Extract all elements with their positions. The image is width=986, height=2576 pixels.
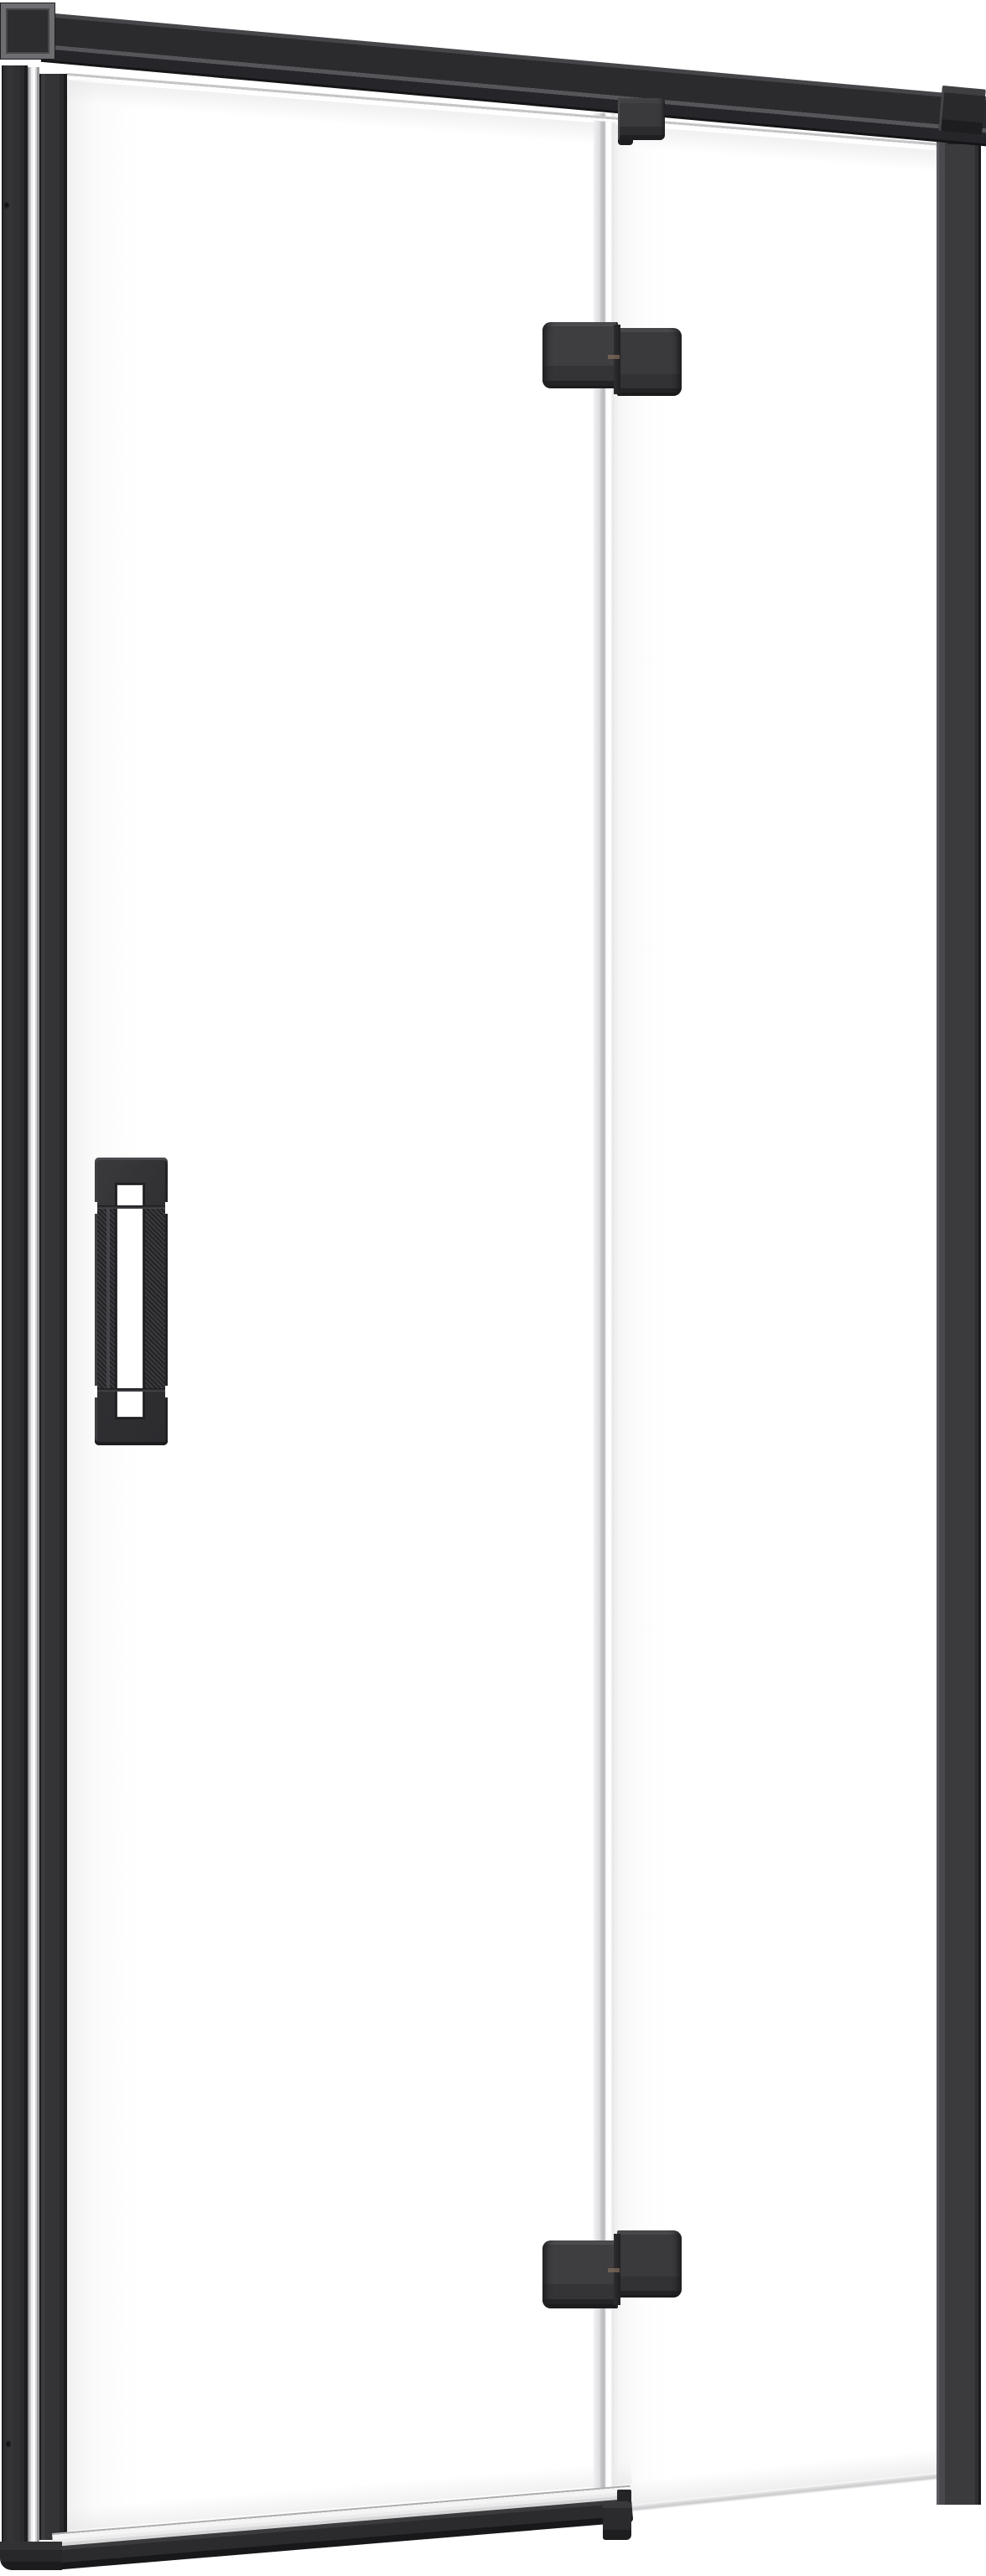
handle-notch (95, 1386, 97, 1397)
hinge-top-joint (614, 325, 620, 394)
handle-cutout (115, 1183, 145, 1419)
screw-bottom-icon (6, 2441, 11, 2448)
hinge-bottom-right-leaf (617, 2230, 682, 2298)
handle-separator-top (95, 1205, 168, 1209)
handle-notch (95, 1202, 97, 1214)
left-wall-profile (2, 65, 28, 2555)
bottom-left-foot (0, 2542, 62, 2570)
fixed-glass-panel (615, 126, 981, 2508)
handle-notch (165, 1202, 168, 1214)
glass-seam (593, 113, 618, 2508)
top-bar-end-cap (938, 86, 986, 134)
screw-top-icon (4, 202, 9, 209)
hinge-bottom-pin-accent (608, 2268, 620, 2272)
handle-grip-right (145, 1209, 165, 1388)
handle-separator-bottom (95, 1388, 168, 1392)
wall-mount-block (0, 3, 55, 60)
handle-highlight (106, 1209, 110, 1388)
door-handle[interactable] (95, 1158, 168, 1445)
top-clamp-bracket (618, 98, 665, 140)
shower-door-render (0, 0, 986, 2576)
handle-notch (165, 1386, 168, 1397)
hinge-top (542, 321, 682, 401)
hinge-bottom (542, 2230, 682, 2313)
hinge-top-right-leaf (617, 328, 682, 396)
hinge-top-pin-accent (608, 355, 620, 359)
hinge-bottom-left-leaf (542, 2240, 618, 2308)
hinge-top-left-leaf (542, 322, 618, 388)
right-wall-profile (937, 138, 981, 2505)
door-hinge-profile (39, 74, 67, 2540)
glass-edge-strip (28, 67, 39, 2547)
rail-end-cap (603, 2501, 631, 2540)
